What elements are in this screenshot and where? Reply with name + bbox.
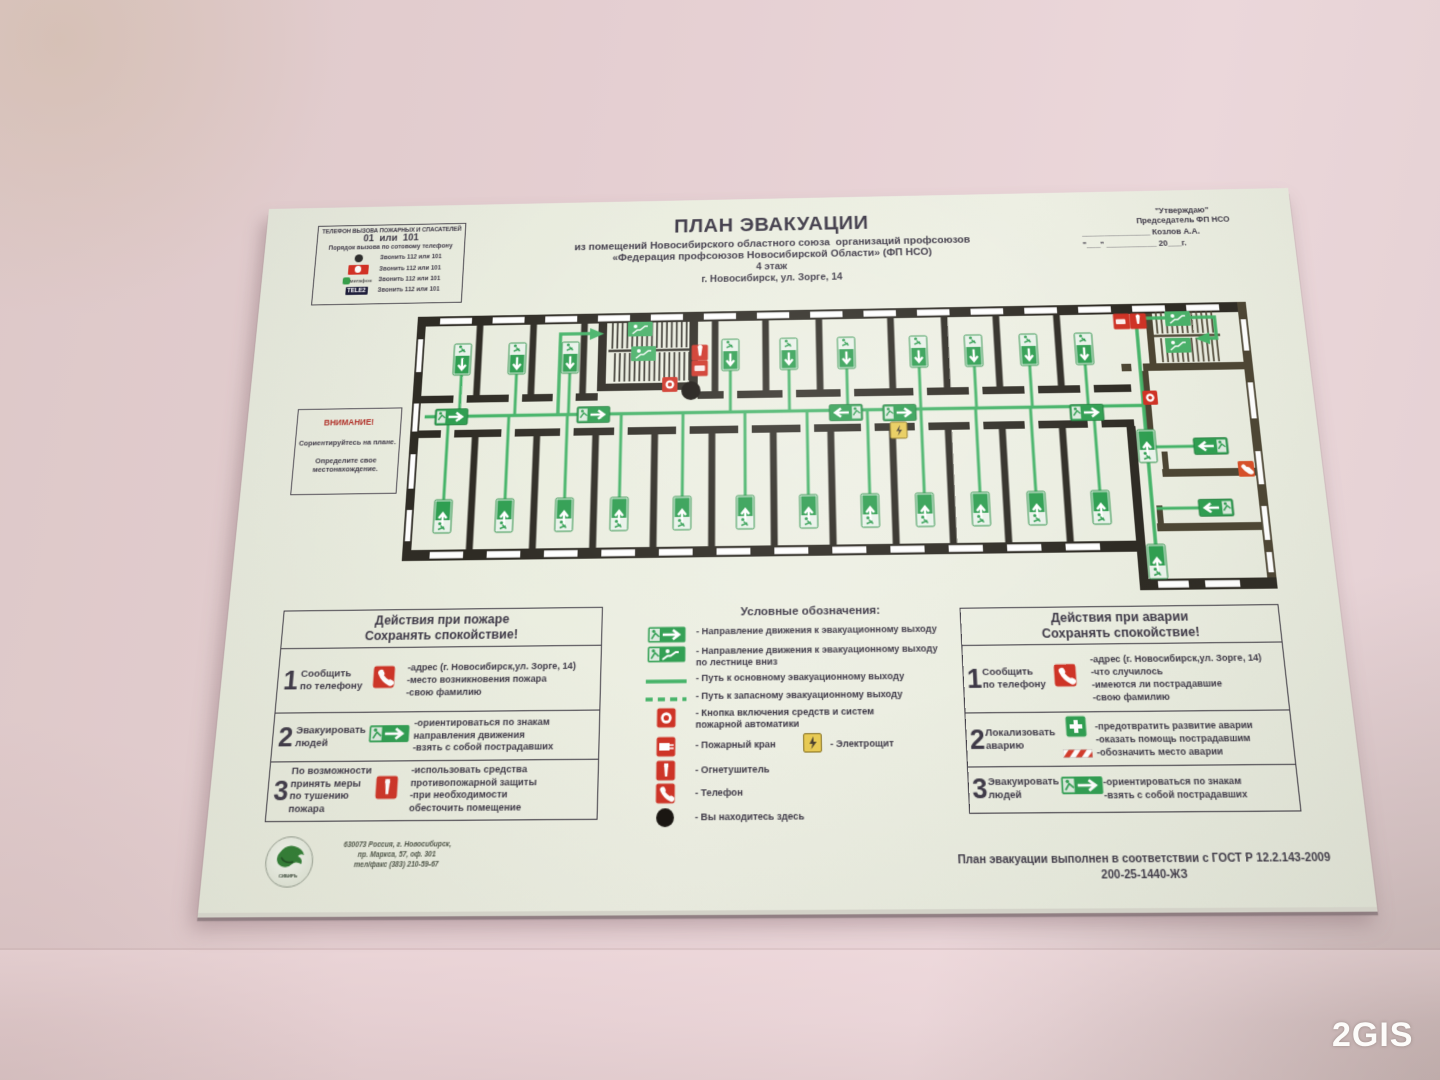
- svg-text:СИБИРЬ: СИБИРЬ: [278, 874, 297, 879]
